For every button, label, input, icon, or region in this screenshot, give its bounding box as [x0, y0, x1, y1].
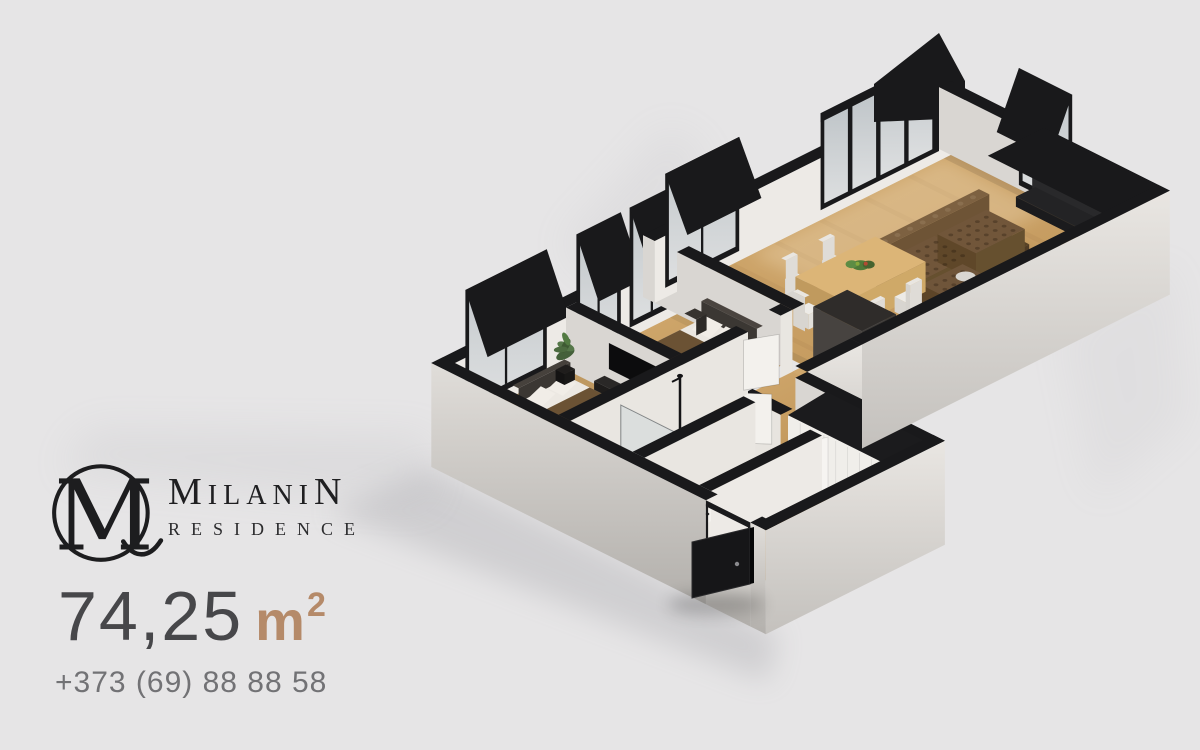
floor-plan-render	[0, 0, 1200, 750]
brand-name-mid: ILANI	[208, 480, 314, 511]
poster-canvas: M MILANIN RESIDENCE 74,25m2 +373 (69) 88…	[0, 0, 1200, 750]
brand-name: MILANIN	[168, 472, 366, 514]
brand-wordmark: MILANIN RESIDENCE	[168, 472, 366, 540]
brand-name-last: N	[314, 471, 347, 513]
brand-subtitle: RESIDENCE	[168, 519, 366, 540]
brand-logo-monogram: M	[46, 450, 168, 572]
brand-name-first: M	[168, 471, 208, 513]
door-handle	[735, 562, 739, 566]
